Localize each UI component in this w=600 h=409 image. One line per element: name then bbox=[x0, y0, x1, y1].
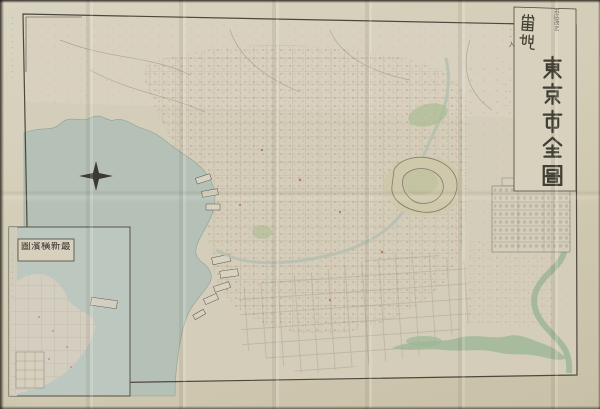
inset-margin-annotation: ········ bbox=[10, 252, 14, 300]
river-branch bbox=[406, 336, 442, 346]
left-margin-annotation: ··········· bbox=[9, 16, 14, 82]
feature-note-secondary: ··入 bbox=[507, 27, 513, 47]
photograph-of-folded-map: 市區改正 ··入 ··········· ···· 圖濱橫新最 ········… bbox=[0, 0, 600, 409]
inset-title: 圖濱橫新最 bbox=[20, 242, 72, 259]
map-artwork bbox=[0, 0, 600, 409]
park-patch bbox=[252, 225, 272, 239]
main-title-glyphs bbox=[544, 57, 562, 185]
edition-note: 市區改正 bbox=[553, 9, 558, 31]
place-label-annotation: ···· bbox=[502, 82, 508, 110]
inset-mini-table bbox=[16, 352, 44, 388]
map-paper: 市區改正 ··入 ··········· ···· 圖濱橫新最 ········… bbox=[0, 0, 600, 409]
urban-east-area bbox=[468, 240, 560, 330]
